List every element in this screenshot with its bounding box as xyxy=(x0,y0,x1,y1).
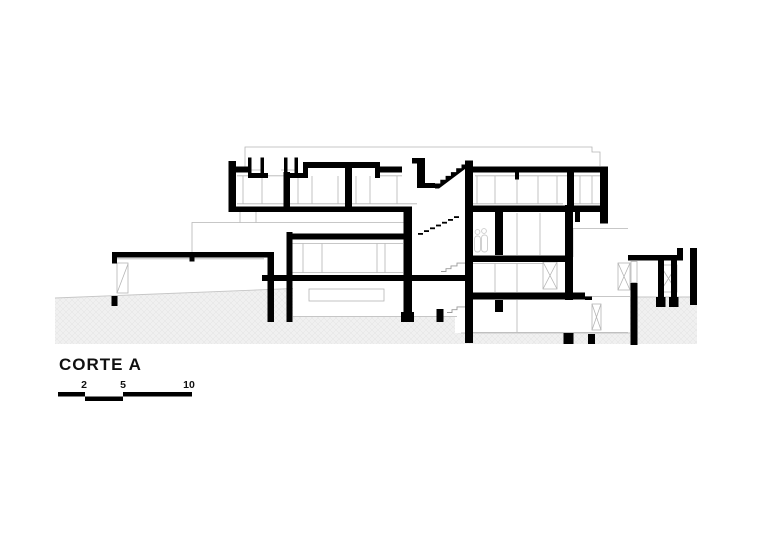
mid-window-band xyxy=(292,244,403,273)
drawing-shape xyxy=(515,173,519,180)
scale-bar-segment-1 xyxy=(58,392,85,397)
annex-right-post xyxy=(690,248,697,305)
mid-roof-slab xyxy=(287,234,404,240)
drawing-shape xyxy=(448,219,453,221)
drawing-shape xyxy=(575,212,580,222)
annex-post-2 xyxy=(671,261,677,298)
scale-bar: 2 5 10 xyxy=(58,379,195,401)
stair-cut-flight xyxy=(435,165,467,189)
drawing-shape xyxy=(475,236,481,252)
central-wall xyxy=(404,207,413,313)
drawing-shape xyxy=(418,233,423,235)
drawing-title: CORTE A xyxy=(59,355,142,374)
upper-right-wall xyxy=(600,167,608,224)
drawing-shape xyxy=(412,158,418,164)
drawing-shape xyxy=(482,229,487,234)
upper-left-wall xyxy=(229,161,237,212)
stair-step-outline-mid xyxy=(441,263,465,271)
drawing-shape xyxy=(482,235,488,252)
drawing-shape xyxy=(677,248,683,261)
roof-curb xyxy=(295,158,299,174)
stair-landing xyxy=(417,183,435,188)
raised-roof-band xyxy=(303,162,380,168)
drawing-shape xyxy=(112,258,117,264)
house-right-wall xyxy=(631,283,638,345)
stair-dashed-flight xyxy=(418,216,459,235)
stair-step-outline-low xyxy=(447,307,465,313)
scale-label-10: 10 xyxy=(183,379,195,391)
wall-6 xyxy=(565,205,573,300)
drawing-shape xyxy=(475,230,480,235)
drawing-sheet: CORTE A 2 5 10 xyxy=(0,0,768,543)
upper-wall-4 xyxy=(567,172,574,206)
drawing-shape xyxy=(248,173,268,178)
section-drawing-canvas: CORTE A 2 5 10 xyxy=(0,0,768,543)
roof-curb xyxy=(248,158,252,174)
annex-roof xyxy=(638,255,678,261)
scale-bar-segment-2 xyxy=(85,397,123,402)
drawing-shape xyxy=(618,263,630,290)
human-figure xyxy=(482,229,488,252)
drawing-shape xyxy=(585,297,592,301)
drawing-shape xyxy=(564,333,574,344)
upper-floor-slab-left xyxy=(229,207,413,213)
human-figure xyxy=(475,230,481,252)
drawing-shape xyxy=(380,167,402,173)
drawing-shape xyxy=(58,392,192,401)
door-outline-mid-room xyxy=(543,262,557,289)
scale-label-2: 2 xyxy=(81,379,87,391)
human-figures xyxy=(475,229,488,252)
staircase-behind xyxy=(418,216,465,312)
rear-volume-outline xyxy=(192,212,408,252)
drawing-shape xyxy=(236,167,248,173)
level3-floor-slab xyxy=(472,293,585,300)
drawing-shape xyxy=(303,162,308,178)
scale-label-5: 5 xyxy=(120,379,126,391)
drawing-shape xyxy=(592,304,601,330)
drawing-shape xyxy=(495,300,503,312)
drawing-shape xyxy=(117,264,128,293)
drawing-shape xyxy=(436,225,441,227)
door-outline-carport xyxy=(117,263,128,293)
wall-opening-outline xyxy=(631,262,637,283)
drawing-shape xyxy=(424,230,429,232)
stair-right-wall xyxy=(465,161,473,344)
roof-curb xyxy=(261,158,265,174)
drawing-shape xyxy=(401,312,414,322)
level2-floor-slab xyxy=(465,256,565,263)
drawing-shape xyxy=(669,297,679,307)
drawing-shape xyxy=(430,227,435,229)
carport-roof xyxy=(112,252,270,258)
drawing-shape xyxy=(437,309,444,322)
drawing-shape xyxy=(190,258,195,262)
drawing-shape xyxy=(656,297,666,307)
drawing-shape xyxy=(588,334,595,344)
annex-post-1 xyxy=(658,261,664,298)
right-roof-slab xyxy=(467,167,608,173)
drawing-shape xyxy=(375,162,380,178)
drawing-shape xyxy=(454,216,459,218)
scale-bar-segment-3 xyxy=(123,392,192,397)
roof-curb xyxy=(284,158,288,174)
drawing-shape xyxy=(112,296,118,306)
drawing-shape xyxy=(628,255,638,261)
terrace-outline xyxy=(573,229,628,258)
upper-floor-slab-right xyxy=(473,206,608,213)
upper-wall-2 xyxy=(284,172,291,207)
sunken-planter-outline xyxy=(309,289,384,301)
carport-column xyxy=(268,252,275,322)
drawing-shape xyxy=(543,262,557,289)
upper-wall-3 xyxy=(345,168,352,207)
drawing-shape xyxy=(442,222,447,224)
door-outline-lower-room xyxy=(592,304,601,330)
door-outline-right-room xyxy=(618,263,630,290)
mid-floor-slab xyxy=(262,275,473,281)
drawing-shape xyxy=(495,212,503,255)
